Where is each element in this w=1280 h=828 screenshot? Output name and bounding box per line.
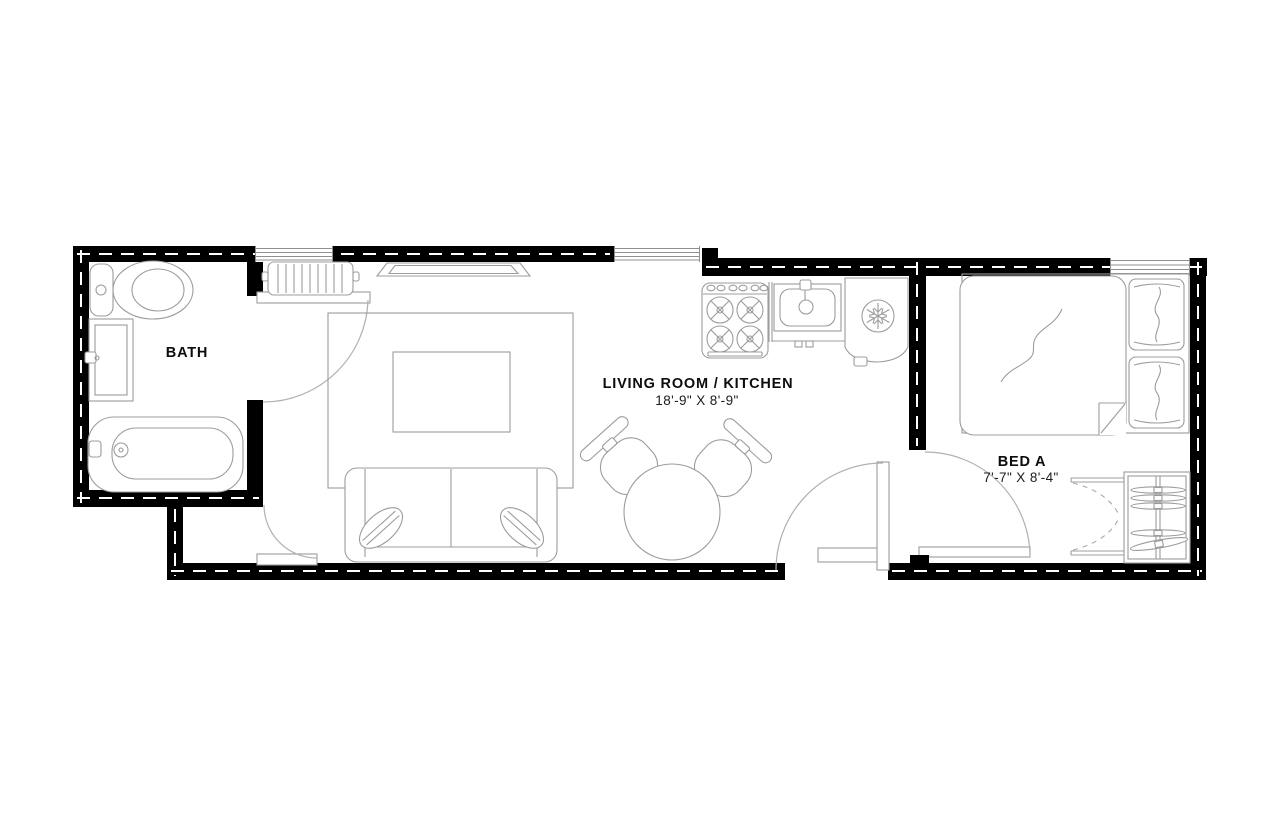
floor-plan-svg: BATH LIVING ROOM / KITCHEN 18'-9" X 8'-9… [0,0,1280,828]
tub-faucet [89,441,101,457]
dining-table [624,464,720,560]
toilet-tank [90,264,113,316]
window-bedroom [1110,258,1190,276]
refrigerator [845,278,908,366]
living-kitchen-dimensions: 18'-9" X 8'-9" [655,393,738,408]
toilet [90,261,193,319]
bed-pillow-top [1129,279,1184,350]
living-kitchen-room-label: LIVING ROOM / KITCHEN [603,376,794,392]
bath-door [257,292,370,402]
fridge-handle [854,357,867,366]
left-wall [73,246,89,507]
coffee-table [393,352,510,432]
tv-console [377,263,530,276]
bathtub [88,417,243,492]
kitchen-sink [774,280,841,331]
hall-door-leaf [877,462,889,570]
floor-plan-page: BATH LIVING ROOM / KITCHEN 18'-9" X 8'-9… [0,0,1280,828]
entry-door-swing-arc [264,505,317,558]
wardrobe-closet [1071,472,1190,563]
bath-room-label: BATH [166,345,208,361]
window-living [614,246,700,262]
vanity-faucet [85,352,96,363]
entry-door-leaf [257,554,317,565]
bath-right-wall-bottom [247,400,263,505]
radiator [262,262,359,295]
double-bed [960,274,1189,435]
hall-door [776,462,889,570]
bedroom-door-leaf [919,547,1030,557]
bed-a-room-label: BED A [998,454,1047,470]
sink-faucet [800,280,811,290]
closet-bifold-doors [1071,478,1124,555]
window-bath-living [255,246,333,262]
entry-door [257,505,317,565]
clothes-hangers [1130,487,1189,553]
bath-door-swing-arc [263,300,368,402]
bed-pillow-bottom [1129,357,1184,428]
sofa [345,468,557,562]
bedroom-door-stub [910,555,929,567]
vanity-sink [85,319,133,401]
sink-drain [799,300,813,314]
bed-a-dimensions: 7'-7" X 8'-4" [983,470,1058,485]
blanket-corner-fold [1099,403,1126,435]
stove [702,283,768,358]
